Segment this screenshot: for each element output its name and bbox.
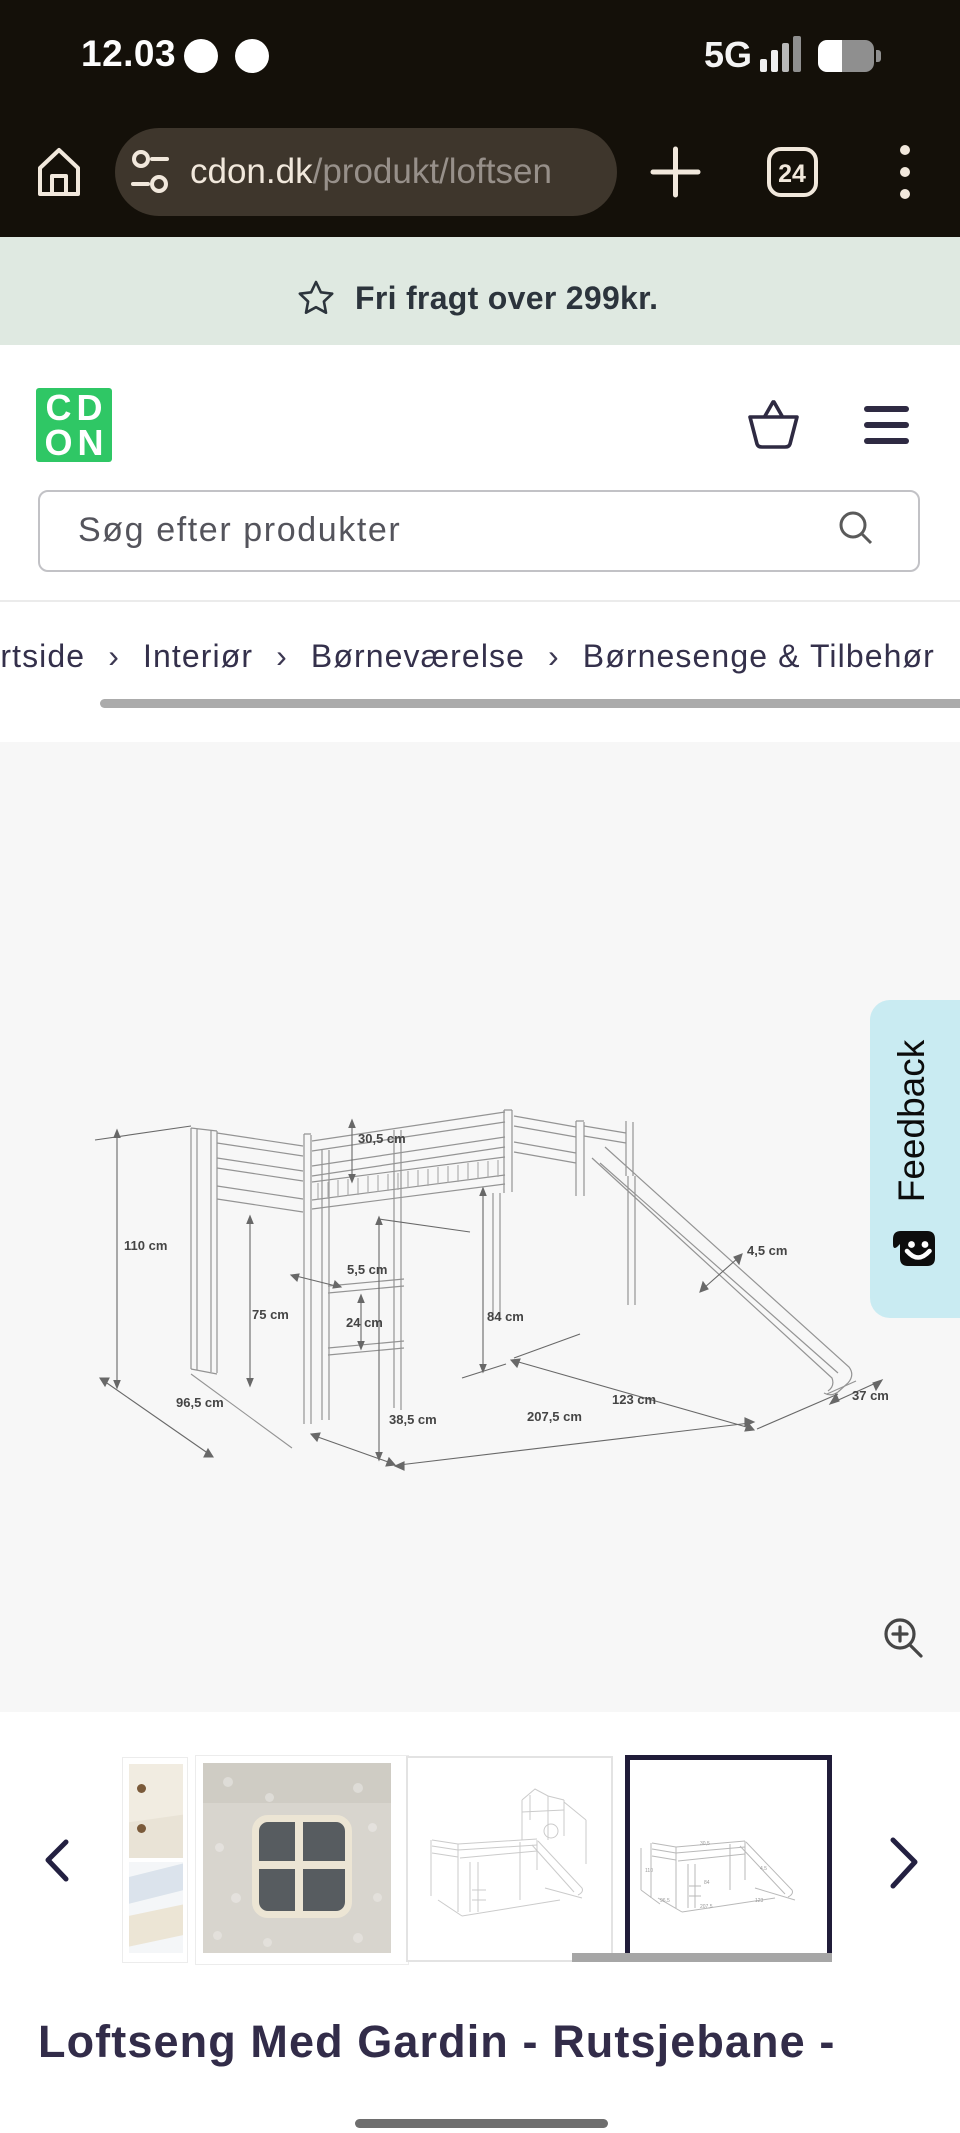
svg-text:123: 123 bbox=[755, 1898, 764, 1904]
svg-text:30,5 cm: 30,5 cm bbox=[358, 1131, 406, 1146]
svg-text:84: 84 bbox=[704, 1880, 710, 1886]
svg-text:207,5: 207,5 bbox=[700, 1904, 713, 1910]
svg-text:4,5 cm: 4,5 cm bbox=[747, 1243, 787, 1258]
svg-text:207,5 cm: 207,5 cm bbox=[527, 1409, 582, 1424]
svg-text:5,5 cm: 5,5 cm bbox=[347, 1262, 387, 1277]
svg-text:75 cm: 75 cm bbox=[252, 1307, 289, 1322]
svg-text:110: 110 bbox=[645, 1868, 653, 1874]
svg-text:96,5 cm: 96,5 cm bbox=[176, 1395, 224, 1410]
svg-text:110 cm: 110 cm bbox=[124, 1238, 167, 1253]
svg-text:37 cm: 37 cm bbox=[852, 1388, 889, 1403]
svg-text:38,5 cm: 38,5 cm bbox=[389, 1412, 437, 1427]
svg-text:30,5: 30,5 bbox=[700, 1841, 710, 1847]
svg-text:4,5: 4,5 bbox=[760, 1866, 767, 1872]
svg-text:123 cm: 123 cm bbox=[612, 1392, 656, 1407]
svg-text:24: 24 bbox=[778, 160, 806, 188]
svg-text:84 cm: 84 cm bbox=[487, 1309, 524, 1324]
svg-text:24 cm: 24 cm bbox=[346, 1315, 383, 1330]
svg-text:96,5: 96,5 bbox=[660, 1898, 670, 1904]
